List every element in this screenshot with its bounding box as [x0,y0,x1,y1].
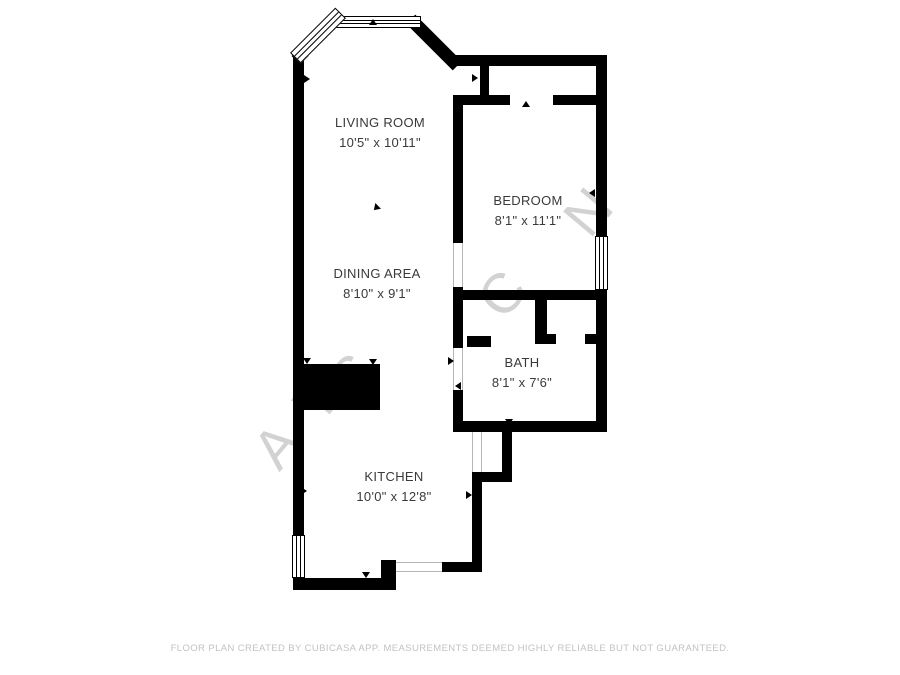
window-bay-diagonal [290,8,346,64]
room-label-bath: BATH 8'1" x 7'6" [492,353,552,393]
room-dimensions: 8'1" x 7'6" [492,373,552,393]
door-marker [522,101,530,107]
wall [553,95,597,105]
north-arrow-icon [371,203,381,213]
room-name: LIVING ROOM [335,113,425,133]
door-marker [472,74,478,82]
door-marker [455,382,461,390]
wall [450,55,607,66]
room-dimensions: 8'10" x 9'1" [333,284,420,304]
wall [480,62,489,98]
wall [381,560,396,590]
window-kitchen-left [292,535,305,578]
wall [535,300,547,336]
room-dimensions: 8'1" x 11'1" [493,211,562,231]
room-name: BEDROOM [493,191,562,211]
room-label-bedroom: BEDROOM 8'1" x 11'1" [493,191,562,231]
door-opening-bottom [396,562,442,572]
window-bedroom-right [595,236,608,290]
wall [453,290,606,300]
wall [453,421,607,432]
wall [293,56,304,590]
wall [467,336,491,347]
room-name: DINING AREA [333,264,420,284]
door-marker [589,189,595,197]
door-marker [466,491,472,499]
door-opening-bedroom [453,243,463,287]
wall [502,432,512,482]
door-marker [362,572,370,578]
wall [453,390,463,421]
wall [535,334,556,344]
wall [472,482,482,572]
door-opening-entry [472,432,482,472]
chimney-block [302,364,380,410]
wall [453,287,463,348]
room-name: KITCHEN [356,467,431,487]
wall [453,95,510,105]
door-marker [455,192,461,200]
room-label-living-room: LIVING ROOM 10'5" x 10'11" [335,113,425,153]
door-marker [304,75,310,83]
wall [453,98,463,243]
door-marker [369,19,377,25]
room-name: BATH [492,353,552,373]
footer-disclaimer: FLOOR PLAN CREATED BY CUBICASA APP. MEAS… [0,643,900,654]
door-marker [303,358,311,364]
door-marker [301,487,307,495]
room-dimensions: 10'0" x 12'8" [356,487,431,507]
window-living-room-top [336,16,421,28]
room-label-dining-area: DINING AREA 8'10" x 9'1" [333,264,420,304]
door-marker [505,419,513,425]
wall [585,334,597,344]
door-marker [448,357,454,365]
room-dimensions: 10'5" x 10'11" [335,133,425,153]
floor-plan: A Y S C N LIVING [0,0,900,675]
room-label-kitchen: KITCHEN 10'0" x 12'8" [356,467,431,507]
door-marker [369,359,377,365]
